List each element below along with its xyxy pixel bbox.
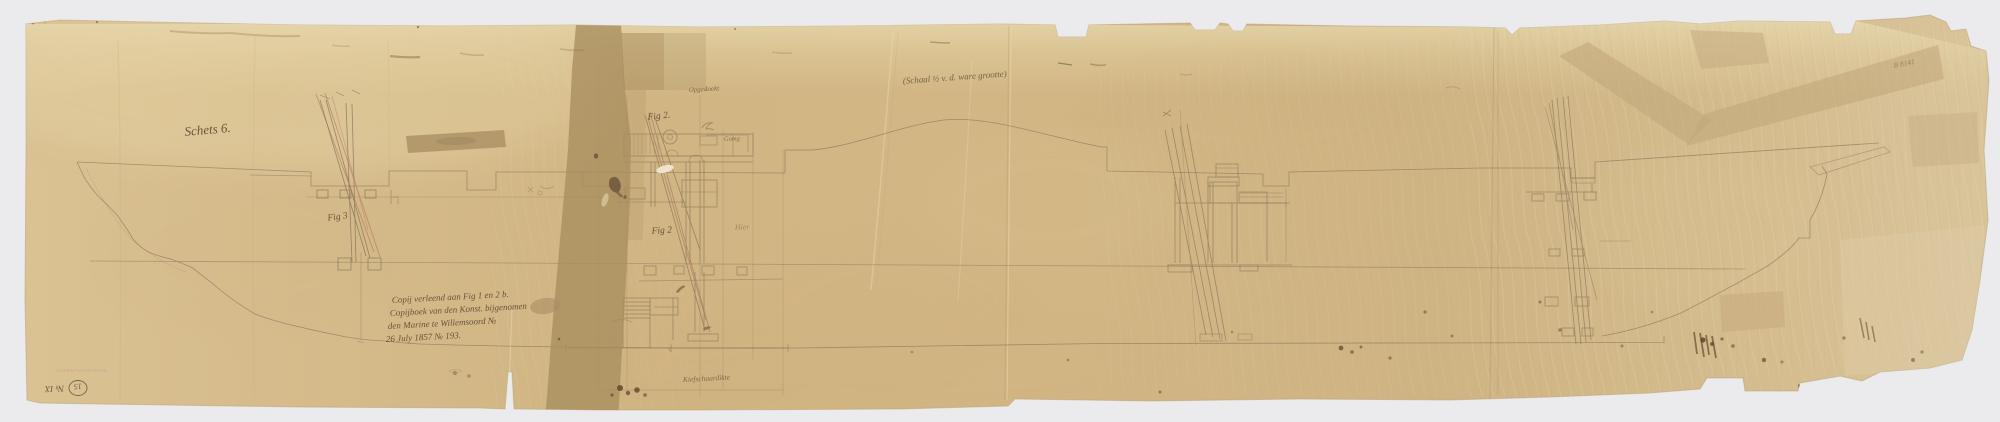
svg-text:№ IX: № IX [44, 384, 65, 395]
svg-text:15: 15 [73, 382, 82, 392]
svg-text:SCHEEPVAARTMUS: SCHEEPVAARTMUS [56, 368, 107, 373]
svg-text:Gomg: Gomg [724, 135, 741, 143]
svg-text:Hier: Hier [734, 222, 751, 232]
svg-text:Fig 2: Fig 2 [650, 225, 672, 236]
